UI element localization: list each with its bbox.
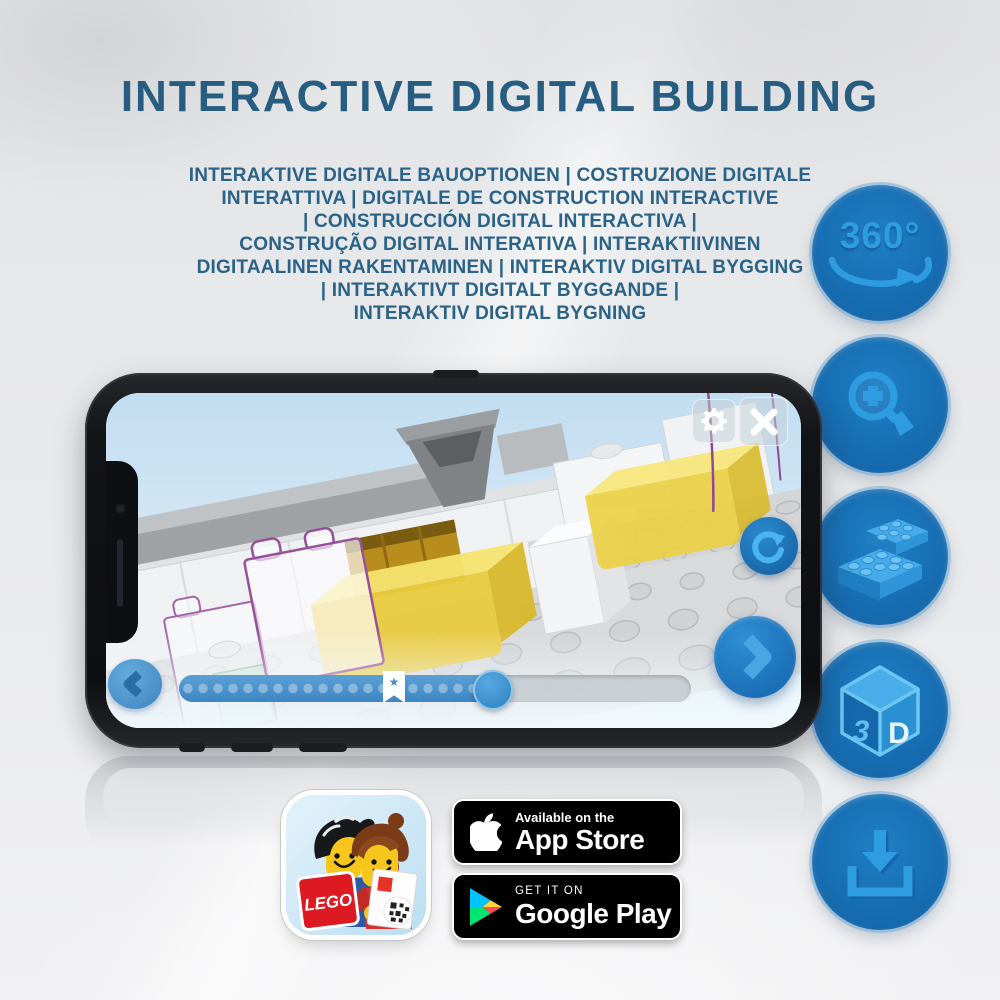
phone-volume-button <box>231 743 273 752</box>
app-store-badge[interactable]: Available on the App Store <box>452 799 682 865</box>
chevron-left-icon <box>115 664 155 704</box>
build-progress-slider[interactable]: ★ <box>179 675 691 702</box>
earpiece-speaker <box>117 539 123 607</box>
3d-cube-icon: 3 D <box>834 661 926 759</box>
lego-marketing-page: INTERACTIVE DIGITAL BUILDING INTERAKTIVE… <box>0 0 1000 1000</box>
gear-icon <box>700 407 728 435</box>
smartphone-mockup: ★ <box>85 373 822 748</box>
google-play-icon <box>470 888 502 926</box>
chevron-right-icon <box>723 625 787 689</box>
apple-icon <box>470 813 502 851</box>
page-title: INTERACTIVE DIGITAL BUILDING <box>0 72 1000 122</box>
rotate-icon <box>750 527 788 565</box>
cube-d-label: D <box>888 717 910 750</box>
next-step-button[interactable] <box>714 616 796 698</box>
previous-step-button[interactable] <box>108 659 162 709</box>
lego-app-icon: LEGO <box>286 795 426 935</box>
app-store-tagline: Available on the <box>515 810 644 825</box>
feature-download <box>812 794 948 930</box>
front-camera <box>115 503 126 514</box>
cube-3-label: 3 <box>853 715 870 748</box>
lego-bricks-icon <box>832 511 928 603</box>
360-degree-label: 360° <box>840 217 921 254</box>
settings-button[interactable] <box>692 399 736 443</box>
subtitle-line: INTERAKTIVE DIGITALE BAUOPTIONEN | COSTR… <box>0 164 1000 187</box>
google-play-name: Google Play <box>515 899 671 929</box>
progress-fill <box>179 675 491 702</box>
phone-power-button <box>179 743 205 752</box>
google-play-tagline: GET IT ON <box>515 884 671 899</box>
phone-notch <box>106 461 138 643</box>
feature-zoom <box>812 337 948 473</box>
rotate-arrow-icon <box>828 254 932 290</box>
feature-360-rotation: 360° <box>812 185 948 321</box>
feature-bricks <box>812 489 948 625</box>
feature-3d-view: 3 D <box>812 642 948 778</box>
download-icon <box>838 822 922 902</box>
close-button[interactable] <box>739 397 788 446</box>
phone-volume-button <box>299 743 347 752</box>
magnifier-plus-icon <box>840 365 920 445</box>
phone-side-key <box>433 370 479 378</box>
google-play-badge[interactable]: GET IT ON Google Play <box>452 873 682 940</box>
close-icon <box>750 408 778 436</box>
rotate-view-button[interactable] <box>740 517 798 575</box>
phone-screen: ★ <box>106 393 801 728</box>
app-store-name: App Store <box>515 825 644 855</box>
lego-minifigures-illustration: LEGO <box>286 795 426 935</box>
